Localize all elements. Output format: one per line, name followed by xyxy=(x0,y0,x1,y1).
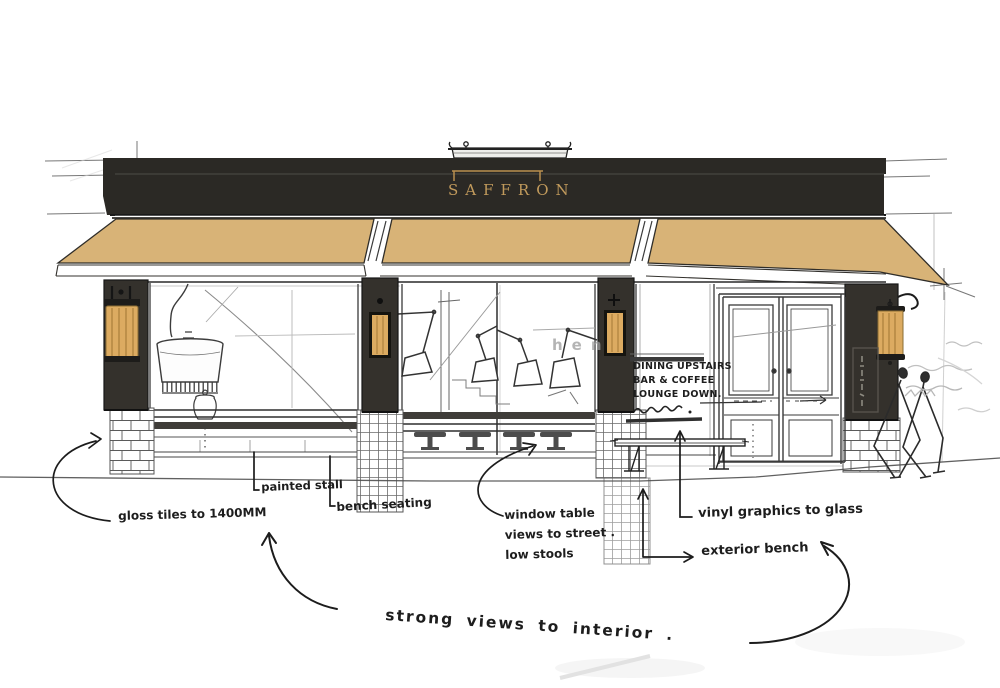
arrow-view-left xyxy=(269,536,337,609)
leader-gloss-tiles xyxy=(53,441,110,521)
window-2-interior xyxy=(398,283,597,455)
awning xyxy=(56,218,948,286)
tile-pier-4 xyxy=(843,418,900,472)
window-1-counter xyxy=(152,410,358,417)
glass-note-line-2: BAR & COFFEE xyxy=(633,374,732,388)
annotation-painted-stall: painted stall xyxy=(261,477,343,494)
annotation-window-table-l3: low stools xyxy=(505,542,616,565)
entry-door xyxy=(716,288,846,464)
glass-vinyl-note: DINING UPSTAIRS BAR & COFFEE LOUNGE DOWN… xyxy=(633,360,732,402)
awning-panel-center xyxy=(382,219,640,263)
stool-icons xyxy=(414,432,572,450)
illegible-scribble xyxy=(634,406,682,413)
leader-painted-stall xyxy=(254,452,259,490)
arrow-view-right xyxy=(750,546,849,643)
storefront-sketch: hen SAFFRON DINING UPSTAIRS BAR & COFFEE… xyxy=(0,0,1000,688)
awning-panel-right xyxy=(648,219,948,285)
annotation-window-table-l2: views to street . xyxy=(505,522,616,545)
counter-jar-icon xyxy=(194,390,216,452)
glass-note-line-3: LOUNGE DOWN. xyxy=(633,388,732,402)
shop-sign-text: SAFFRON xyxy=(448,181,576,199)
sketch-linework xyxy=(0,0,1000,688)
wall-lamps xyxy=(104,286,918,365)
glass-note-line-1: DINING UPSTAIRS xyxy=(633,360,732,374)
awning-panel-left xyxy=(58,219,374,263)
stairs-sketch xyxy=(452,380,510,404)
window-2-counter xyxy=(401,424,595,431)
annotation-window-table: window table views to street . low stool… xyxy=(504,502,616,565)
ghost-watermark-text: hen xyxy=(552,336,611,354)
tile-pier-1 xyxy=(110,408,154,474)
pendant-lamp-icon xyxy=(157,284,223,393)
